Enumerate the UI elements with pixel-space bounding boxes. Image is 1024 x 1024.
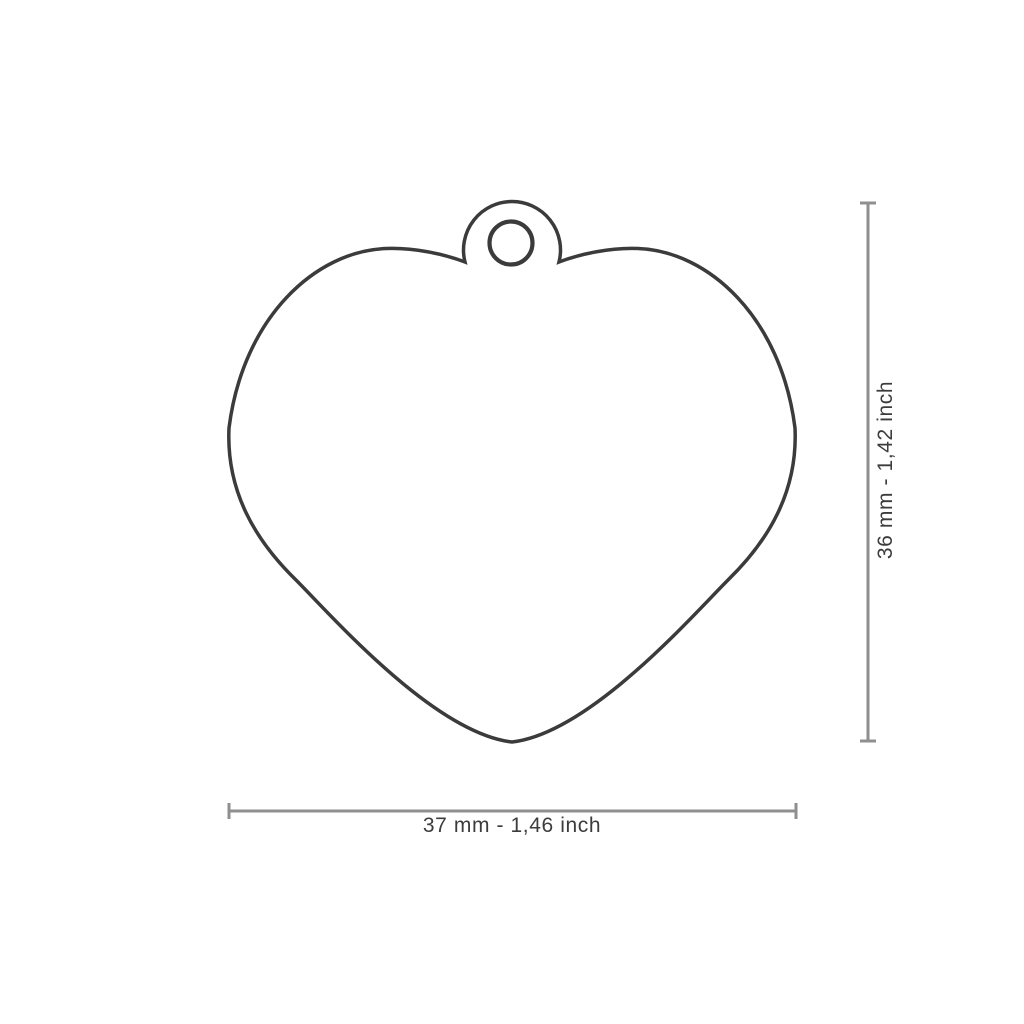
height-dimension-label: 36 mm - 1,42 inch: [874, 381, 898, 559]
heart-tag-outline: [229, 202, 795, 742]
tag-dimension-diagram: [0, 0, 1024, 1024]
width-dimension-label: 37 mm - 1,46 inch: [423, 814, 601, 838]
diagram-canvas: 37 mm - 1,46 inch 36 mm - 1,42 inch: [0, 0, 1024, 1024]
hanging-hole: [490, 222, 533, 265]
